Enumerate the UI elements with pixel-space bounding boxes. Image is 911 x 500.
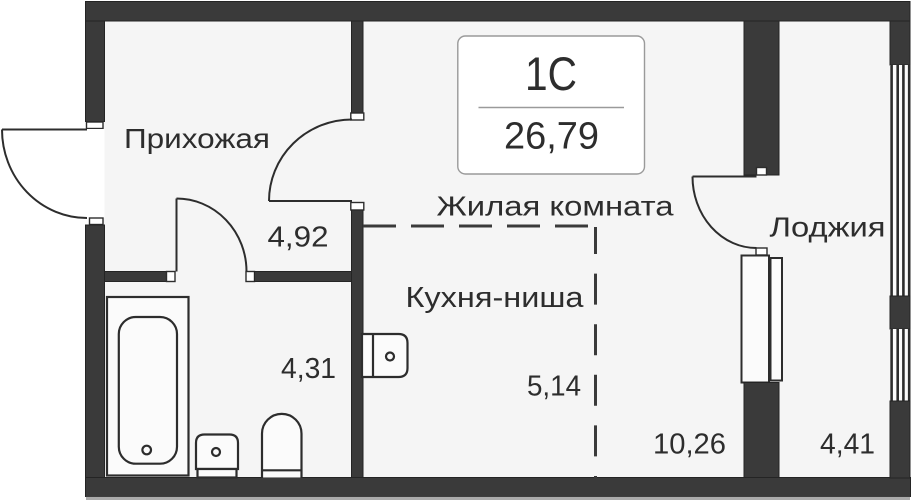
svg-text:4,31: 4,31 — [281, 352, 336, 384]
svg-text:1С: 1С — [525, 48, 577, 101]
svg-text:Лоджия: Лоджия — [770, 212, 886, 243]
svg-text:10,26: 10,26 — [653, 428, 726, 460]
svg-text:4,92: 4,92 — [268, 221, 329, 253]
svg-text:26,79: 26,79 — [504, 116, 599, 158]
svg-text:4,41: 4,41 — [820, 428, 875, 460]
svg-text:Кухня-ниша: Кухня-ниша — [406, 282, 585, 314]
svg-text:5,14: 5,14 — [527, 370, 581, 402]
svg-text:Прихожая: Прихожая — [124, 123, 270, 154]
svg-text:Жилая комната: Жилая комната — [437, 191, 675, 222]
